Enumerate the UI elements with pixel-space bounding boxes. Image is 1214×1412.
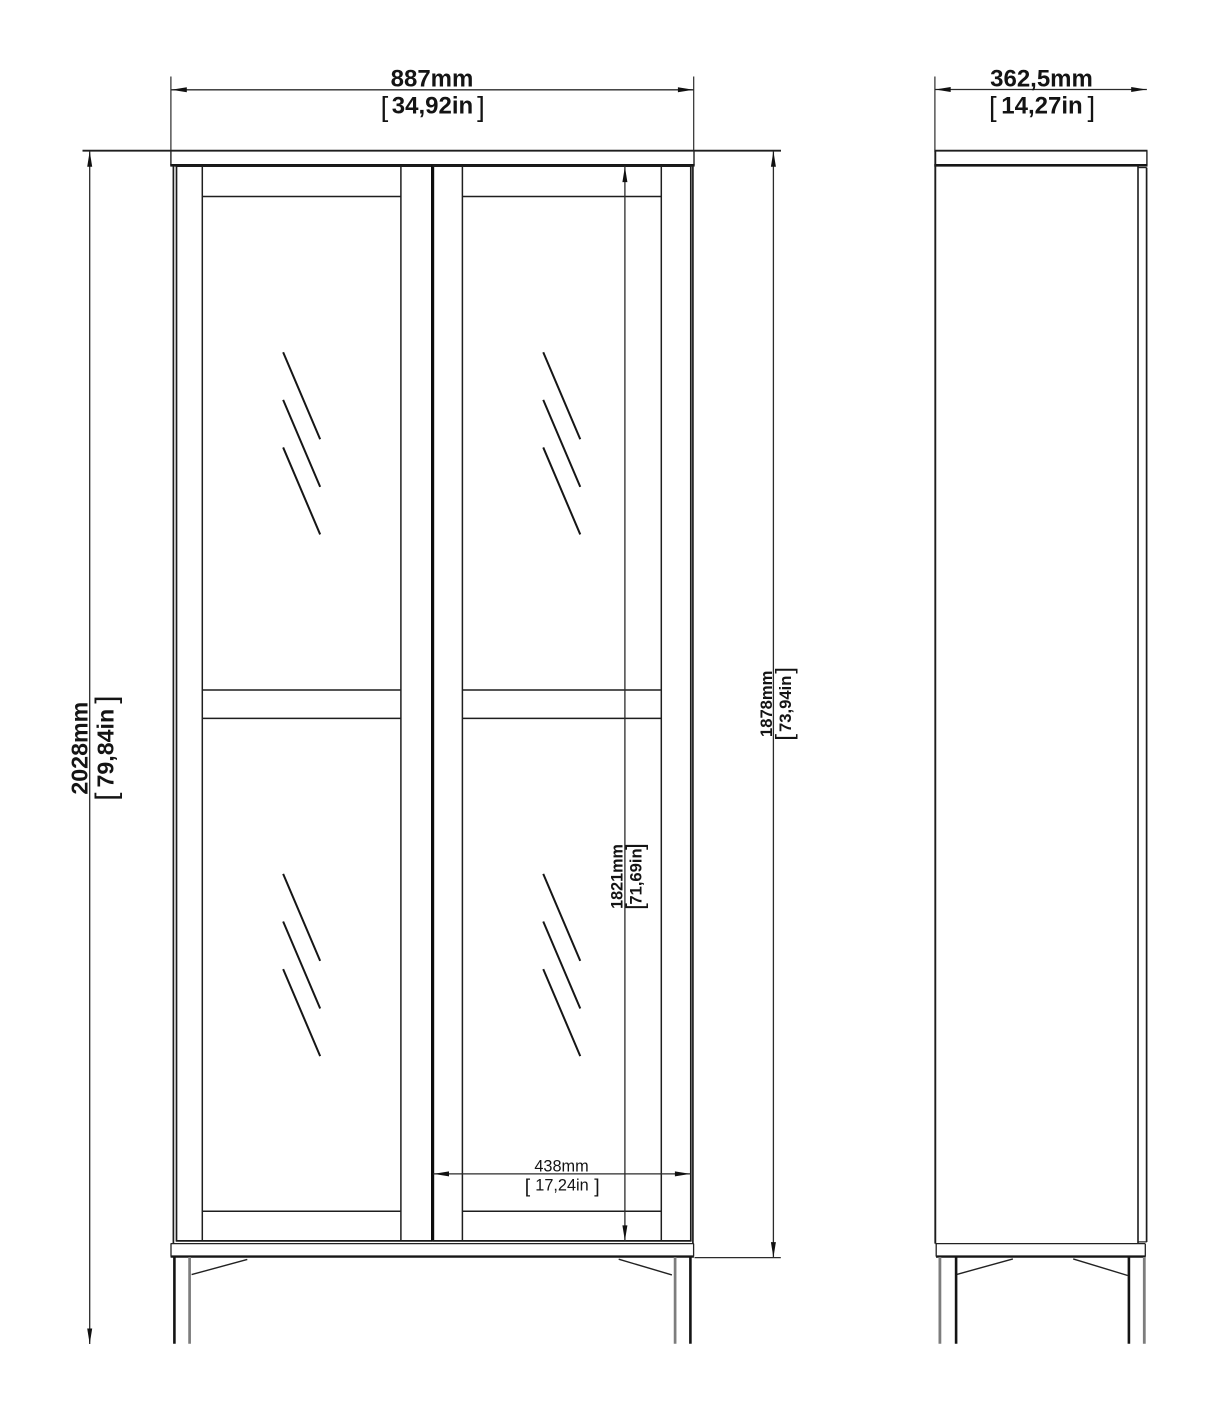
svg-text:34,92in: 34,92in <box>392 93 473 120</box>
svg-text:17,24in: 17,24in <box>535 1177 588 1195</box>
svg-text:362,5mm: 362,5mm <box>990 66 1093 93</box>
svg-text:[: [ <box>989 91 997 122</box>
svg-text:1821mm: 1821mm <box>609 844 627 909</box>
svg-text:[: [ <box>90 793 123 801</box>
svg-text:[: [ <box>381 91 389 122</box>
svg-text:[: [ <box>771 734 798 741</box>
svg-text:]: ] <box>90 696 123 704</box>
svg-text:1878mm: 1878mm <box>757 671 776 737</box>
svg-text:]: ] <box>477 91 485 122</box>
svg-text:]: ] <box>771 667 798 674</box>
svg-text:]: ] <box>594 1175 599 1197</box>
svg-text:]: ] <box>622 843 649 850</box>
svg-text:[: [ <box>525 1175 531 1197</box>
svg-text:887mm: 887mm <box>391 66 474 93</box>
svg-text:79,84in: 79,84in <box>93 709 119 788</box>
svg-text:]: ] <box>1087 91 1095 122</box>
svg-text:14,27in: 14,27in <box>1001 93 1082 120</box>
svg-text:73,94in: 73,94in <box>776 676 795 732</box>
svg-text:71,69in: 71,69in <box>627 848 646 904</box>
svg-text:2028mm: 2028mm <box>67 702 93 795</box>
svg-text:438mm: 438mm <box>534 1158 588 1176</box>
